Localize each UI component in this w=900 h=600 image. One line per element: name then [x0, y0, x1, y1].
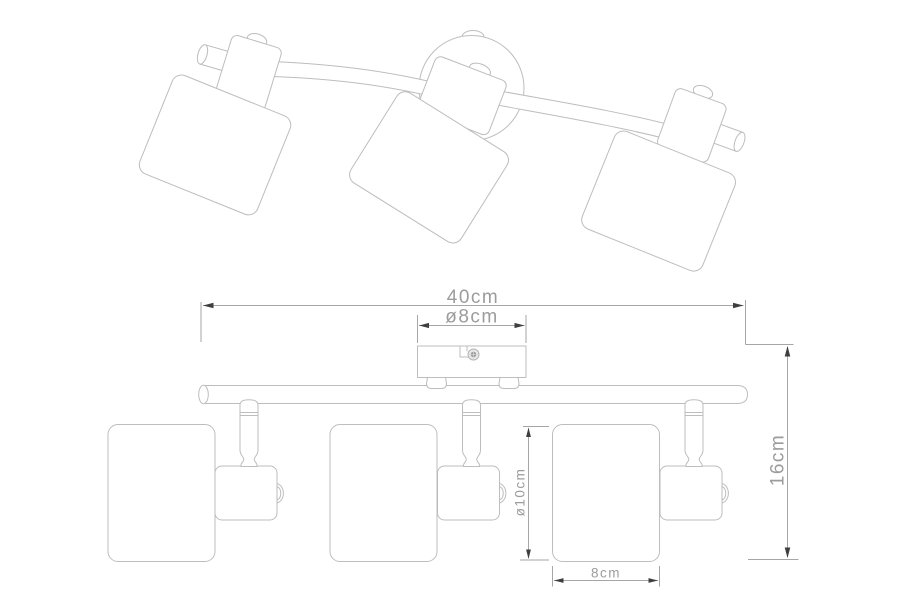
front-view — [108, 346, 748, 562]
arrowhead — [785, 346, 791, 357]
dimension-label: ø10cm — [513, 468, 528, 517]
technical-drawing: 40cm ø8cm 16cm ø10cm — [0, 0, 900, 600]
arrowhead — [554, 578, 564, 583]
technical-drawing-page: 40cm ø8cm 16cm ø10cm — [0, 0, 900, 600]
lamp-shade — [108, 425, 215, 562]
arrowhead — [649, 578, 659, 583]
bar-left-cap — [199, 385, 209, 403]
dimension-label: 16cm — [768, 434, 789, 486]
lamp-shade — [553, 425, 660, 562]
dimension-label: ø8cm — [445, 307, 499, 328]
arrowhead — [203, 303, 214, 309]
arrowhead — [419, 323, 429, 328]
dimension-fixture-height: 16cm — [746, 345, 799, 560]
arrowhead — [733, 303, 744, 309]
dimension-shade-diameter: ø10cm — [513, 427, 550, 561]
canopy-screw — [468, 349, 479, 360]
stem — [463, 400, 481, 467]
front-lamp-3 — [553, 400, 729, 562]
arrowhead — [526, 428, 531, 438]
stem — [685, 400, 703, 467]
lamp-shade — [136, 72, 293, 218]
front-lamp-1 — [108, 400, 283, 562]
dimension-canopy-diameter: ø8cm — [418, 307, 527, 344]
canopy-foot-left — [427, 378, 447, 389]
front-lamp-2 — [330, 400, 506, 562]
lamp-shade — [330, 425, 437, 562]
stem — [240, 400, 258, 467]
arrowhead — [526, 550, 531, 560]
lamp-shade — [579, 128, 739, 274]
perspective-view — [136, 31, 747, 275]
lamp-holder — [215, 466, 277, 520]
dimensions: 40cm ø8cm 16cm ø10cm — [201, 287, 799, 587]
lamp-holder — [660, 466, 722, 520]
canopy-foot-right — [499, 378, 519, 389]
arrowhead — [785, 548, 791, 559]
dimension-label: 40cm — [447, 287, 499, 308]
lamp-holder — [438, 466, 500, 520]
dimension-label: 8cm — [591, 566, 621, 581]
dimension-shade-width: 8cm — [553, 566, 660, 587]
arrowhead — [515, 323, 525, 328]
